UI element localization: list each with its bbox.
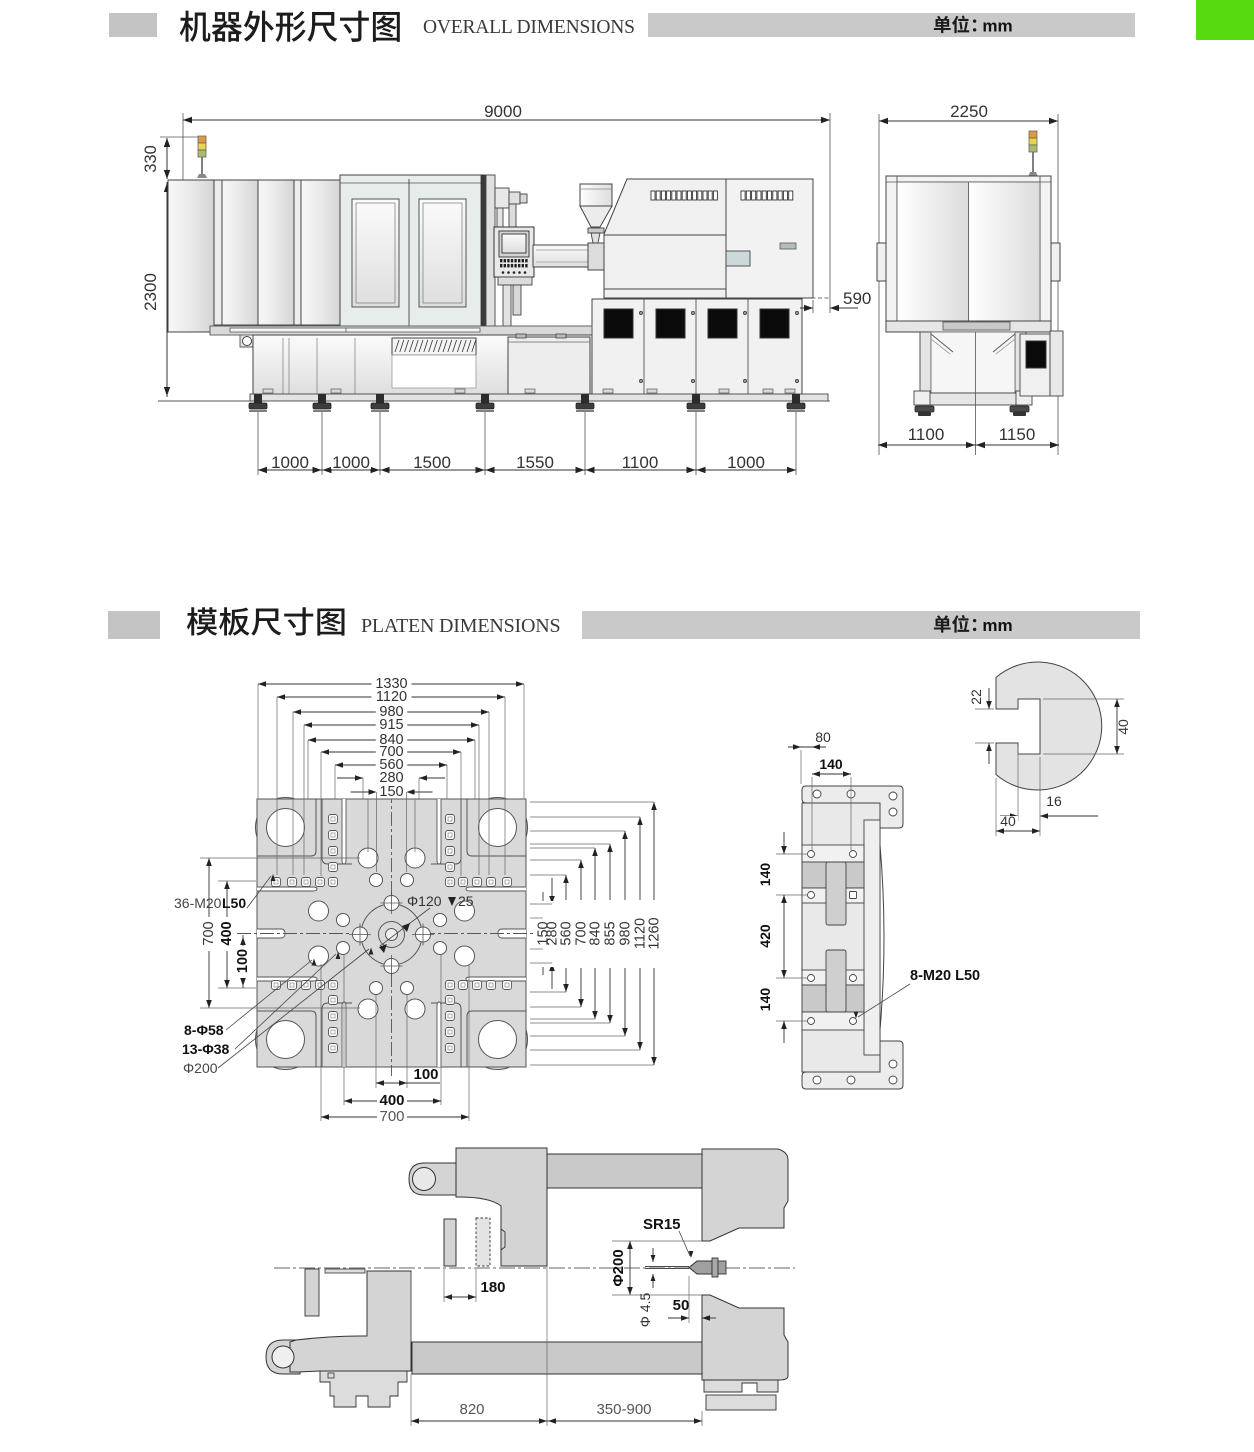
svg-text:80: 80 (815, 729, 831, 745)
svg-text:700: 700 (201, 921, 217, 945)
svg-text:Φ200: Φ200 (610, 1249, 627, 1286)
svg-text:Φ200: Φ200 (183, 1060, 218, 1076)
svg-text:8-Φ58: 8-Φ58 (184, 1022, 224, 1038)
svg-text:40: 40 (1000, 813, 1016, 829)
svg-text:1000: 1000 (332, 453, 370, 472)
svg-text:400: 400 (219, 921, 235, 945)
svg-text:840: 840 (588, 921, 604, 945)
svg-text:Φ120: Φ120 (407, 893, 442, 909)
svg-text:560: 560 (559, 921, 575, 945)
svg-text:400: 400 (379, 1092, 404, 1109)
svg-text:OVERALL DIMENSIONS: OVERALL DIMENSIONS (423, 17, 635, 38)
svg-text:16: 16 (1046, 793, 1062, 809)
svg-text:1150: 1150 (999, 425, 1036, 444)
svg-text:2250: 2250 (950, 102, 988, 121)
svg-text:SR15: SR15 (643, 1216, 681, 1233)
svg-text:1100: 1100 (622, 453, 659, 472)
svg-text:820: 820 (459, 1401, 484, 1418)
svg-text:50: 50 (673, 1297, 690, 1314)
svg-text:915: 915 (379, 717, 403, 733)
svg-text:140: 140 (757, 863, 773, 887)
svg-text:140: 140 (819, 756, 843, 772)
svg-text:8-M20 L50: 8-M20 L50 (910, 968, 980, 984)
svg-text:100: 100 (235, 949, 251, 973)
svg-text:1500: 1500 (413, 453, 451, 472)
svg-text:590: 590 (843, 289, 871, 308)
svg-text:mm: mm (982, 616, 1012, 635)
svg-text:2300: 2300 (141, 273, 160, 311)
svg-text:40: 40 (1115, 719, 1131, 735)
svg-text:1000: 1000 (271, 453, 309, 472)
svg-text:L50: L50 (222, 895, 246, 911)
svg-text:855: 855 (603, 921, 619, 945)
svg-text:1000: 1000 (727, 453, 765, 472)
svg-text:180: 180 (480, 1279, 505, 1296)
svg-text:1550: 1550 (516, 453, 554, 472)
svg-text:420: 420 (757, 924, 773, 948)
svg-text:1100: 1100 (908, 425, 945, 444)
svg-text:13-Φ38: 13-Φ38 (182, 1041, 230, 1057)
svg-text:980: 980 (618, 921, 634, 945)
svg-text:1120: 1120 (376, 689, 407, 705)
svg-text:36-M20: 36-M20 (174, 895, 222, 911)
svg-text:1260: 1260 (647, 917, 663, 949)
svg-text:350-900: 350-900 (596, 1401, 651, 1418)
svg-text:9000: 9000 (484, 102, 522, 121)
svg-text:330: 330 (142, 145, 160, 173)
svg-text:100: 100 (413, 1066, 438, 1083)
svg-text:25: 25 (458, 893, 474, 909)
svg-text:mm: mm (982, 17, 1012, 36)
svg-text:140: 140 (757, 988, 773, 1012)
svg-text:150: 150 (379, 784, 403, 800)
svg-text:700: 700 (379, 1108, 404, 1125)
svg-text:22: 22 (968, 689, 984, 705)
svg-text:PLATEN DIMENSIONS: PLATEN DIMENSIONS (361, 615, 560, 637)
svg-text:Φ 4.5: Φ 4.5 (637, 1293, 653, 1328)
